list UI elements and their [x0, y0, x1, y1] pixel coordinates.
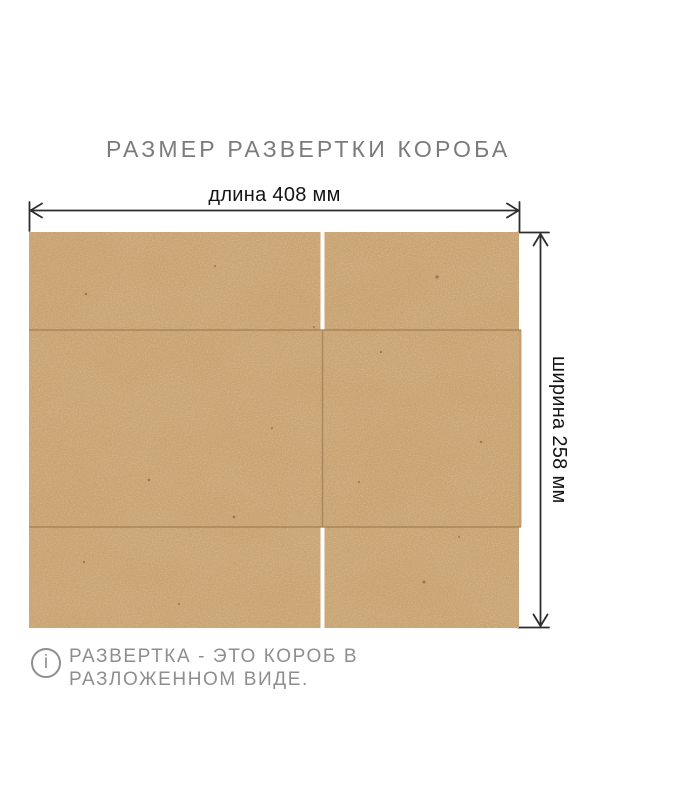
- arrowhead-down-icon: [534, 615, 548, 627]
- kraft-grain-light: [29, 232, 519, 628]
- cardboard-unfolding: [29, 232, 522, 628]
- info-icon-glyph: i: [44, 652, 48, 673]
- note-text: РАЗВЕРТКА - ЭТО КОРОБ В РАЗЛОЖЕННОМ ВИДЕ…: [69, 645, 527, 691]
- kraft-shade-overlay: [29, 232, 519, 628]
- length-dimension-label: длина 408 мм: [29, 184, 520, 207]
- cut-slit-top: [321, 232, 325, 329]
- width-dimension-line: [518, 233, 549, 628]
- kraft-specks: [83, 265, 482, 605]
- width-dimension-label: ширина 258 мм: [547, 232, 570, 628]
- fold-lines: [29, 330, 521, 527]
- cut-slits: [321, 232, 325, 628]
- arrowhead-up-icon: [534, 234, 548, 246]
- info-icon: i: [31, 648, 61, 678]
- middle-band-protrusion: [519, 330, 522, 527]
- kraft-base: [29, 232, 519, 628]
- kraft-panels: [29, 232, 522, 628]
- page: РАЗМЕР РАЗВЕРТКИ КОРОБА длина 408 мм: [0, 0, 683, 811]
- page-title: РАЗМЕР РАЗВЕРТКИ КОРОБА: [106, 136, 510, 163]
- cut-slit-bottom: [321, 528, 325, 628]
- note: i РАЗВЕРТКА - ЭТО КОРОБ В РАЗЛОЖЕННОМ ВИ…: [31, 645, 527, 691]
- kraft-grain-dark: [29, 232, 519, 628]
